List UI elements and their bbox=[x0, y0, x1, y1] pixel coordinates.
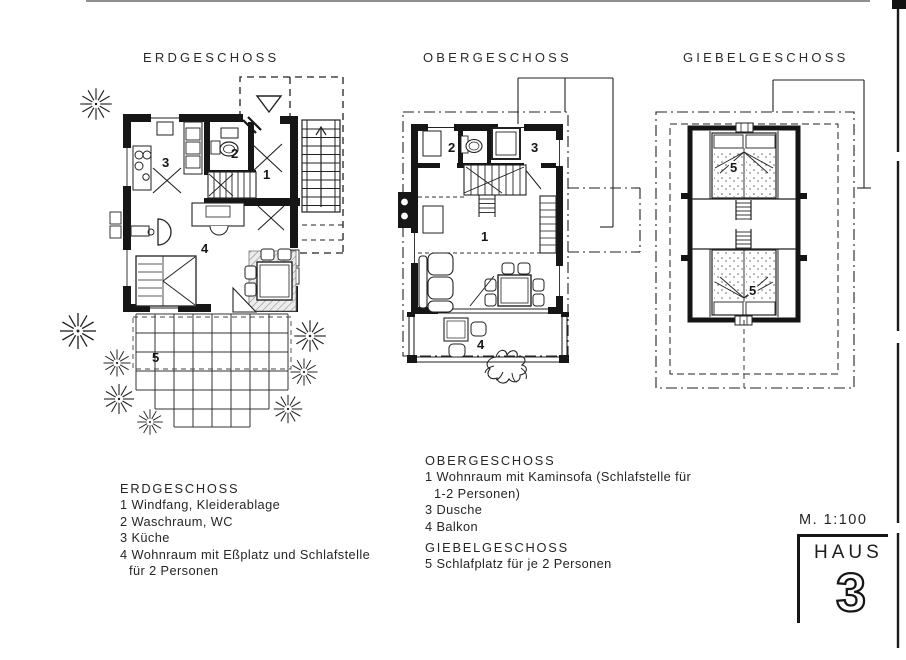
legend-obergeschoss: OBERGESCHOSS 1 Wohnraum mit Kaminsofa (S… bbox=[425, 453, 691, 535]
washbasin-icon bbox=[423, 131, 441, 156]
erdgeschoss-floor-plan: 3 2 1 4 5 bbox=[60, 77, 343, 435]
room-label-dusche: 3 bbox=[531, 140, 538, 155]
room-label-kueche: 3 bbox=[162, 155, 169, 170]
chimney-icon bbox=[398, 192, 411, 228]
room-label-wohnraum: 4 bbox=[201, 241, 209, 256]
exterior-stairs-icon bbox=[302, 120, 343, 240]
legend-line: 2 Waschraum, WC bbox=[120, 514, 370, 530]
room-label-windfang: 1 bbox=[263, 167, 270, 182]
room-label-wohnraum: 1 bbox=[481, 229, 488, 244]
legend-erdgeschoss: ERDGESCHOSS 1 Windfang, Kleiderablage 2 … bbox=[120, 481, 370, 579]
legend-line: 1-2 Personen) bbox=[425, 486, 691, 502]
bed-icon bbox=[712, 133, 776, 198]
balcony-railing bbox=[407, 312, 569, 363]
house-number: 3 bbox=[836, 563, 866, 623]
house-name-label: HAUS bbox=[814, 542, 888, 564]
bed-icon bbox=[136, 256, 196, 306]
plan-title-erdgeschoss: ERDGESCHOSS bbox=[143, 50, 279, 65]
room-label-waschraum: 2 bbox=[231, 146, 238, 161]
legend-line: 3 Dusche bbox=[425, 502, 691, 518]
legend-line: 4 Wohnraum mit Eßplatz und Schlafstelle bbox=[120, 547, 370, 563]
giebelgeschoss-floor-plan: 5 5 bbox=[656, 80, 871, 388]
legend-line: 1 Wohnraum mit Kaminsofa (Schlafstelle f… bbox=[425, 469, 691, 485]
stove-icon bbox=[131, 219, 171, 245]
legend-title: OBERGESCHOSS bbox=[425, 453, 691, 469]
terrace-grid bbox=[133, 314, 291, 427]
legend-line: 5 Schlafplatz für je 2 Personen bbox=[425, 556, 612, 572]
dining-set-icon bbox=[485, 263, 544, 306]
interior-stairs-icon bbox=[464, 165, 526, 195]
ladder-icon bbox=[479, 195, 495, 217]
legend-line: 4 Balkon bbox=[425, 519, 691, 535]
room-label-terrasse: 5 bbox=[152, 350, 159, 365]
house-number-glyph: 3 bbox=[816, 563, 886, 623]
entrance-marker-icon bbox=[257, 96, 281, 112]
dining-set-icon bbox=[245, 249, 296, 311]
interior-stairs-icon bbox=[208, 172, 256, 198]
desk-icon bbox=[192, 203, 244, 235]
legend-giebelgeschoss: GIEBELGESCHOSS 5 Schlafplatz für je 2 Pe… bbox=[425, 540, 612, 573]
bed-icon bbox=[712, 250, 776, 315]
plant-icon bbox=[485, 350, 526, 383]
legend-title: ERDGESCHOSS bbox=[120, 481, 370, 497]
obergeschoss-floor-plan: 2 3 1 4 bbox=[398, 78, 640, 383]
scale-label: M. 1:100 bbox=[799, 512, 867, 528]
plan-title-giebelgeschoss: GIEBELGESCHOSS bbox=[683, 50, 848, 65]
legend-title: GIEBELGESCHOSS bbox=[425, 540, 612, 556]
sofa-icon bbox=[419, 253, 453, 312]
legend-line: für 2 Personen bbox=[120, 563, 370, 579]
closet-icon bbox=[540, 196, 556, 253]
legend-line: 1 Windfang, Kleiderablage bbox=[120, 497, 370, 513]
scan-artifact-right-border bbox=[892, 0, 906, 648]
room-label-waschraum: 2 bbox=[448, 140, 455, 155]
plan-title-obergeschoss: OBERGESCHOSS bbox=[423, 50, 572, 65]
desk-icon bbox=[423, 206, 443, 233]
toilet-icon bbox=[461, 136, 482, 153]
legend-line: 3 Küche bbox=[120, 530, 370, 546]
room-label-schlafplatz-oben: 5 bbox=[730, 160, 737, 175]
shower-icon bbox=[492, 128, 520, 159]
room-label-balkon: 4 bbox=[477, 337, 485, 352]
house-title-block: HAUS 3 bbox=[797, 534, 888, 623]
room-label-schlafplatz-unten: 5 bbox=[749, 283, 756, 298]
floor-plan-sheet: 3 2 1 4 5 bbox=[0, 0, 906, 660]
